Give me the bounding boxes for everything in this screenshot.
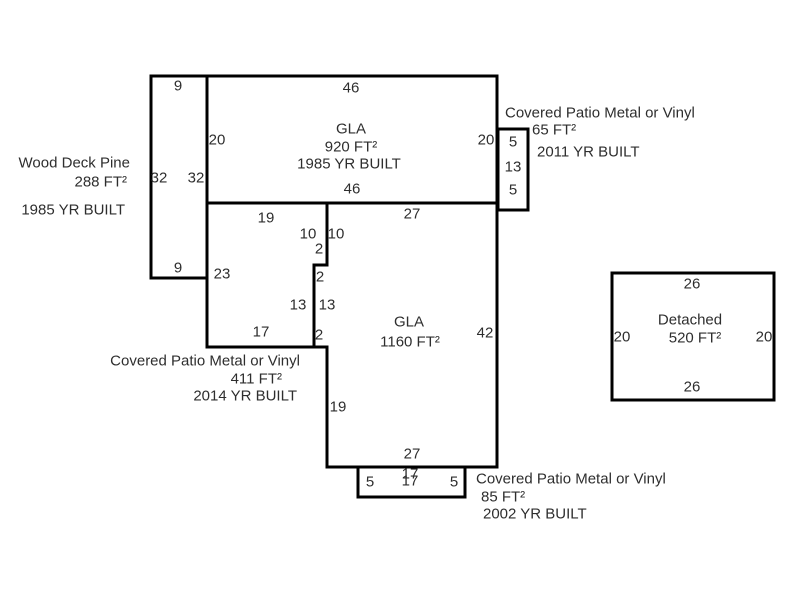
patio-right-year: 2011 YR BUILT [537,143,640,160]
dim-deck-bottom: 9 [174,259,182,276]
dim-patio-left-side: 23 [214,265,231,282]
gla-main-area: 920 FT² [325,138,378,155]
dim-detached-top: 26 [684,275,701,292]
wood-deck-area: 288 FT² [74,173,127,190]
dim-gla-main-bottom: 46 [344,180,361,197]
patio-bottom-name: Covered Patio Metal or Vinyl [476,470,666,487]
gla-lower-area: 1160 FT² [380,333,440,350]
gla-lower-name: GLA [394,313,424,330]
dim-patio-right-bottom: 5 [509,181,517,198]
patio-left-name: Covered Patio Metal or Vinyl [110,352,300,369]
sketch-outlines [0,0,800,600]
wood-deck-name: Wood Deck Pine [19,154,130,171]
patio-right-name: Covered Patio Metal or Vinyl [505,104,695,121]
dim-patio-bottom-left: 5 [366,473,374,490]
dim-patio-right-side: 13 [505,158,522,175]
dim-lower-top-left: 19 [258,209,275,226]
patio-bottom-year: 2002 YR BUILT [483,505,587,522]
dim-step-13-inner: 13 [319,296,336,313]
dim-step-2-upper: 2 [315,240,323,257]
dim-gla-main-right: 20 [478,131,495,148]
detached-area: 520 FT² [669,329,722,346]
dim-step-10-outer: 10 [300,225,317,242]
dim-lower-right: 42 [477,324,494,341]
dim-step-10-inner: 10 [328,225,345,242]
dim-deck-top: 9 [174,77,182,94]
gla-main-name: GLA [336,120,366,137]
dim-step-13-outer: 13 [290,296,307,313]
dim-step-2-lower: 2 [315,326,323,343]
dim-lower-bottom: 27 [404,445,421,462]
dim-patio-bottom-top-inner: 17 [402,472,419,489]
patio-left-area: 411 FT² [231,370,282,387]
gla-main-year: 1985 YR BUILT [297,155,401,172]
patio-left-year: 2014 YR BUILT [193,387,297,404]
dim-gla-main-left: 20 [209,131,226,148]
dim-lower-top-right: 27 [404,205,421,222]
dim-detached-bottom: 26 [684,378,701,395]
dim-deck-right: 32 [188,169,205,186]
dim-deck-left: 32 [151,169,168,186]
dim-gla-main-top: 46 [343,79,360,96]
dim-patio-right-top: 5 [509,133,517,150]
dim-detached-right: 20 [756,328,773,345]
dim-patio-left-bottom: 17 [253,323,270,340]
dim-patio-bottom-right: 5 [450,473,458,490]
property-sketch: Wood Deck Pine 288 FT² 1985 YR BUILT 9 3… [0,0,800,600]
dim-step-2-mid: 2 [316,268,324,285]
detached-name: Detached [658,311,722,328]
patio-right-area: 65 FT² [532,121,576,138]
wood-deck-year: 1985 YR BUILT [21,201,125,218]
dim-detached-left: 20 [614,328,631,345]
dim-lower-left: 19 [330,398,347,415]
patio-bottom-area: 85 FT² [481,488,525,505]
